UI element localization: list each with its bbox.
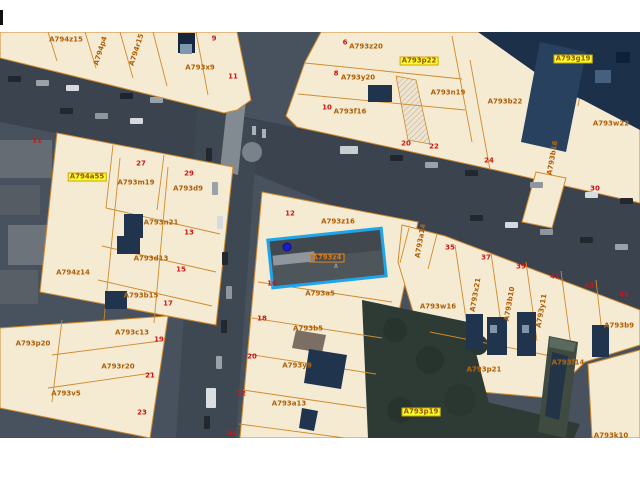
house-number-label: 35 (445, 245, 455, 252)
house-number-label: 20 (247, 354, 257, 361)
house-number-label: 18 (257, 316, 267, 323)
parcel-label-A793v5[interactable]: A793v5 (51, 391, 80, 398)
highlighted-parcel-label-A793p22[interactable]: A793p22 (400, 57, 439, 66)
highlighted-parcel-label-A793g19[interactable]: A793g19 (554, 55, 593, 64)
parcel-label-A793f14[interactable]: A793f14 (552, 360, 585, 367)
highlighted-parcel-label-A793p19[interactable]: A793p19 (402, 408, 441, 417)
house-number-label: 37 (481, 255, 491, 262)
house-number-label: 29 (184, 171, 194, 178)
parcel-label-A793z20[interactable]: A793z20 (349, 44, 383, 51)
house-number-label: 10 (322, 105, 332, 112)
house-number-label: 45 (619, 292, 629, 299)
house-number-label: 41 (550, 274, 560, 281)
parcel-label-A793z16[interactable]: A793z16 (321, 219, 355, 226)
parcel-label-A793f16[interactable]: A793f16 (334, 109, 367, 116)
map-application-window: A794z15A794p4A794r15A793x99116A793z20A79… (0, 0, 640, 480)
parcel-label-A793b15[interactable]: A793b15 (124, 293, 159, 300)
parcel-label-A793b9[interactable]: A793b9 (604, 323, 634, 330)
parcel-label-A793w22[interactable]: A793w22 (593, 121, 629, 128)
parcel-block-bottom-right (588, 350, 640, 438)
parcel-label-A793n21[interactable]: A793n21 (144, 220, 179, 227)
house-number-label: 8 (334, 71, 339, 78)
map-canvas[interactable] (0, 0, 640, 480)
parcel-label-A794z14[interactable]: A794z14 (56, 270, 90, 277)
parcel-label-A793a13[interactable]: A793a13 (272, 401, 307, 408)
parcel-label-A793y20[interactable]: A793y20 (341, 75, 375, 82)
parcel-label-A793r20[interactable]: A793r20 (101, 364, 134, 371)
parcel-label-A793p20[interactable]: A793p20 (16, 341, 51, 348)
selected-parcel-label-A793z4[interactable]: A793z4 (310, 254, 345, 263)
house-number-label: 43 (584, 283, 594, 290)
house-number-label: 17 (163, 301, 173, 308)
highlighted-parcel-label-A794a55[interactable]: A794a55 (68, 173, 107, 182)
house-number-label: 27 (136, 161, 146, 168)
house-number-label: 20 (401, 141, 411, 148)
house-number-label: 11 (228, 74, 238, 81)
house-number-label: 9 (212, 36, 217, 43)
house-number-label: 22 (236, 391, 246, 398)
house-number-label: 6 (343, 40, 348, 47)
house-number-label: 24 (227, 431, 237, 438)
house-number-label: 15 (176, 267, 186, 274)
parcel-label-A793y9[interactable]: A793y9 (282, 363, 311, 370)
parcel-label-A793m19[interactable]: A793m19 (117, 180, 154, 187)
house-number-label: 19 (154, 337, 164, 344)
parcel-label-A793w16[interactable]: A793w16 (420, 304, 456, 311)
parcel-label-A793b22[interactable]: A793b22 (488, 99, 523, 106)
parcel-label-A793n19[interactable]: A793n19 (431, 90, 466, 97)
house-number-label: 12 (285, 211, 295, 218)
parcel-label-A793p21[interactable]: A793p21 (467, 367, 502, 374)
house-number-label: 30 (590, 186, 600, 193)
selection-marker-dot[interactable] (283, 243, 291, 251)
parcel-label-A793c13[interactable]: A793c13 (115, 330, 149, 337)
parcel-label-A793d9[interactable]: A793d9 (173, 186, 203, 193)
house-number-label: 23 (137, 410, 147, 417)
house-number-label: 11 (32, 138, 42, 145)
annotation-label: Δ (334, 265, 337, 270)
house-number-label: 39 (516, 264, 526, 271)
parcel-label-A794z15[interactable]: A794z15 (49, 37, 83, 44)
parcel-label-A793x9[interactable]: A793x9 (185, 65, 214, 72)
parcel-label-A793a5[interactable]: A793a5 (305, 291, 335, 298)
house-number-label: 13 (184, 230, 194, 237)
house-number-label: 16 (267, 281, 277, 288)
parcel-label-A793b5[interactable]: A793b5 (293, 326, 323, 333)
house-number-label: 22 (429, 144, 439, 151)
parcel-label-A793k10[interactable]: A793k10 (594, 433, 628, 439)
house-number-label: 24 (484, 158, 494, 165)
edge-artifact (0, 10, 3, 25)
house-number-label: 21 (145, 373, 155, 380)
parcel-label-A793d13[interactable]: A793d13 (134, 256, 169, 263)
